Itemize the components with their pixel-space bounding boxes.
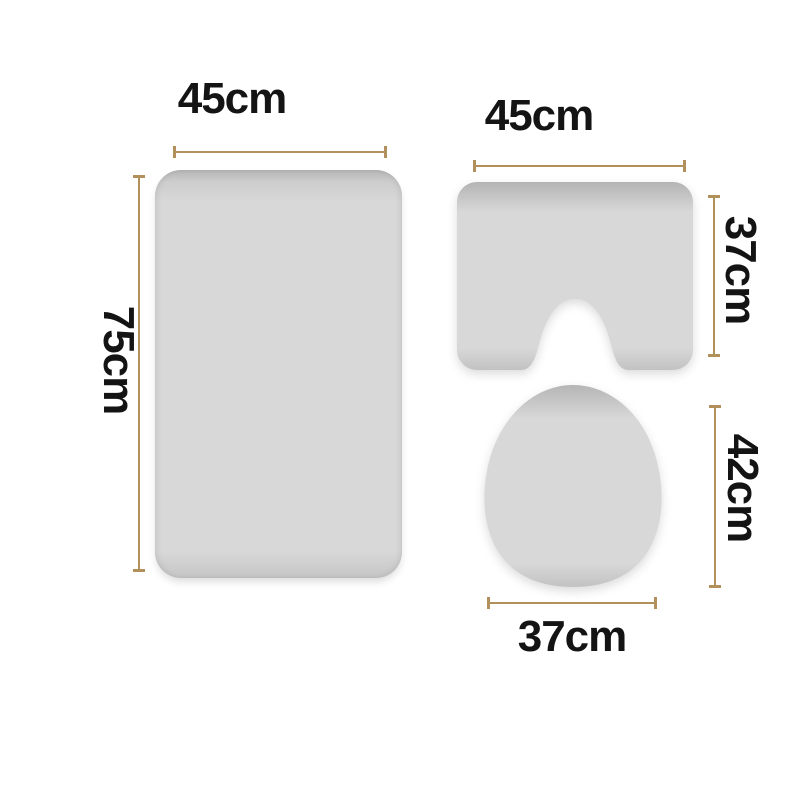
arrow-tick bbox=[133, 175, 145, 178]
arrow-line bbox=[714, 405, 716, 588]
arrow-tick bbox=[173, 146, 176, 158]
arrow-tick bbox=[709, 585, 721, 588]
arrow-tick bbox=[708, 195, 720, 198]
contour-mat-width-arrow bbox=[473, 160, 686, 172]
contour-mat-shape bbox=[457, 182, 693, 370]
contour-mat-width-label: 45cm bbox=[485, 94, 594, 138]
arrow-tick bbox=[133, 569, 145, 572]
arrow-tick bbox=[708, 354, 720, 357]
arrow-line bbox=[173, 151, 387, 153]
arrow-tick bbox=[654, 597, 657, 609]
arrow-tick bbox=[709, 405, 721, 408]
arrow-tick bbox=[473, 160, 476, 172]
lid-cover-width-label: 37cm bbox=[518, 615, 627, 659]
arrow-line bbox=[487, 602, 657, 604]
lid-cover-shape bbox=[480, 385, 667, 587]
lid-cover-height-label: 42cm bbox=[720, 434, 764, 543]
arrow-line bbox=[473, 165, 686, 167]
lid-cover-width-arrow bbox=[487, 597, 657, 609]
bath-mat-shape bbox=[155, 170, 402, 578]
bath-mat-width-arrow bbox=[173, 146, 387, 158]
product-dimension-diagram: 45cm 75cm bbox=[0, 0, 800, 800]
bath-mat-width-label: 45cm bbox=[178, 77, 287, 121]
contour-mat-height-label: 37cm bbox=[718, 216, 762, 325]
arrow-tick bbox=[487, 597, 490, 609]
bath-mat-height-label: 75cm bbox=[96, 306, 140, 415]
arrow-line bbox=[713, 195, 715, 357]
arrow-tick bbox=[683, 160, 686, 172]
arrow-tick bbox=[384, 146, 387, 158]
